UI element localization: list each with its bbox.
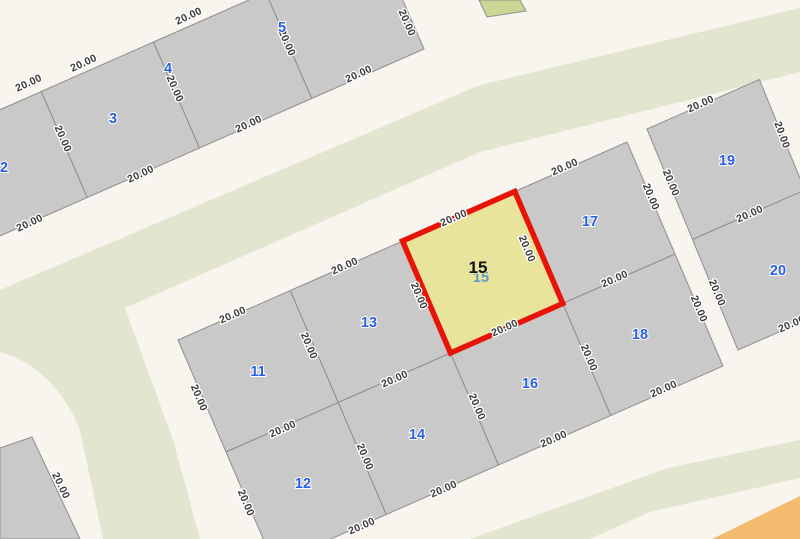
selected-parcel-number: 15	[469, 258, 488, 277]
parcel-number-18: 18	[632, 327, 648, 343]
parcel-number-20: 20	[770, 263, 786, 279]
map-viewport[interactable]: 20.0020.0020.0020.0020.0020.0020.0020.00…	[0, 0, 800, 539]
map-canvas[interactable]: 20.0020.0020.0020.0020.0020.0020.0020.00…	[0, 0, 800, 539]
parcel-number-5: 5	[278, 20, 286, 36]
parcel-number-19: 19	[719, 153, 735, 169]
parcel-number-17: 17	[582, 214, 598, 230]
parcel-number-12: 12	[295, 476, 311, 492]
parcel-number-13: 13	[361, 315, 377, 331]
parcel-number-3: 3	[109, 111, 117, 127]
parcel-number-16: 16	[522, 376, 538, 392]
parcel-number-2: 2	[0, 160, 8, 176]
parcel-number-4: 4	[164, 61, 172, 77]
parcel-number-14: 14	[409, 427, 425, 443]
parcel-number-11: 11	[250, 364, 265, 380]
